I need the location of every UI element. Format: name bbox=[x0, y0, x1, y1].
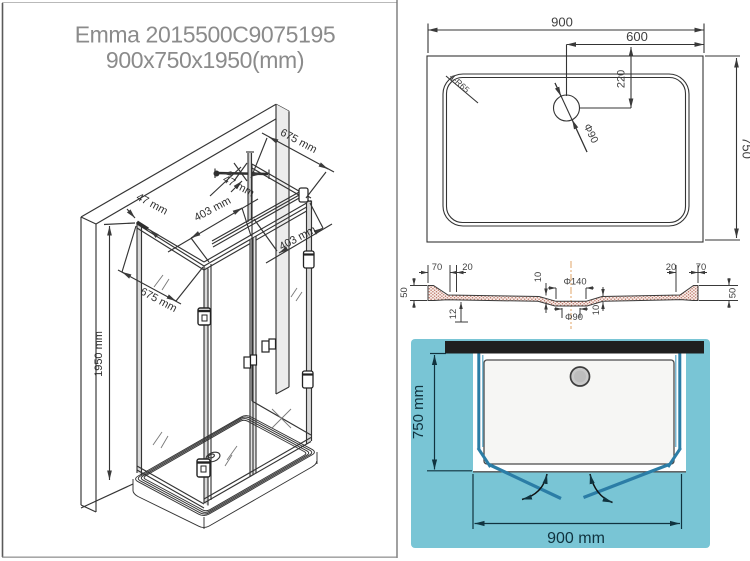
svg-text:220: 220 bbox=[616, 70, 628, 88]
svg-text:20: 20 bbox=[666, 261, 676, 272]
svg-text:70: 70 bbox=[432, 261, 442, 272]
svg-text:10: 10 bbox=[532, 272, 543, 282]
svg-text:600: 600 bbox=[626, 29, 648, 44]
svg-text:900: 900 bbox=[551, 15, 573, 30]
svg-text:12: 12 bbox=[447, 309, 458, 319]
svg-text:20: 20 bbox=[462, 261, 472, 272]
svg-text:750: 750 bbox=[740, 137, 750, 159]
svg-text:Emma 2015500C9075195: Emma 2015500C9075195 bbox=[75, 22, 336, 48]
svg-text:Φ140: Φ140 bbox=[563, 276, 586, 287]
svg-text:50: 50 bbox=[398, 287, 409, 297]
svg-text:10: 10 bbox=[590, 305, 601, 315]
svg-text:900x750x1950(mm): 900x750x1950(mm) bbox=[106, 47, 304, 73]
svg-text:Φ90: Φ90 bbox=[565, 311, 583, 322]
svg-text:1950 mm: 1950 mm bbox=[93, 331, 105, 377]
svg-text:750 mm: 750 mm bbox=[410, 385, 427, 439]
svg-text:900 mm: 900 mm bbox=[547, 530, 605, 547]
svg-text:70: 70 bbox=[696, 261, 706, 272]
svg-text:50: 50 bbox=[727, 288, 738, 298]
